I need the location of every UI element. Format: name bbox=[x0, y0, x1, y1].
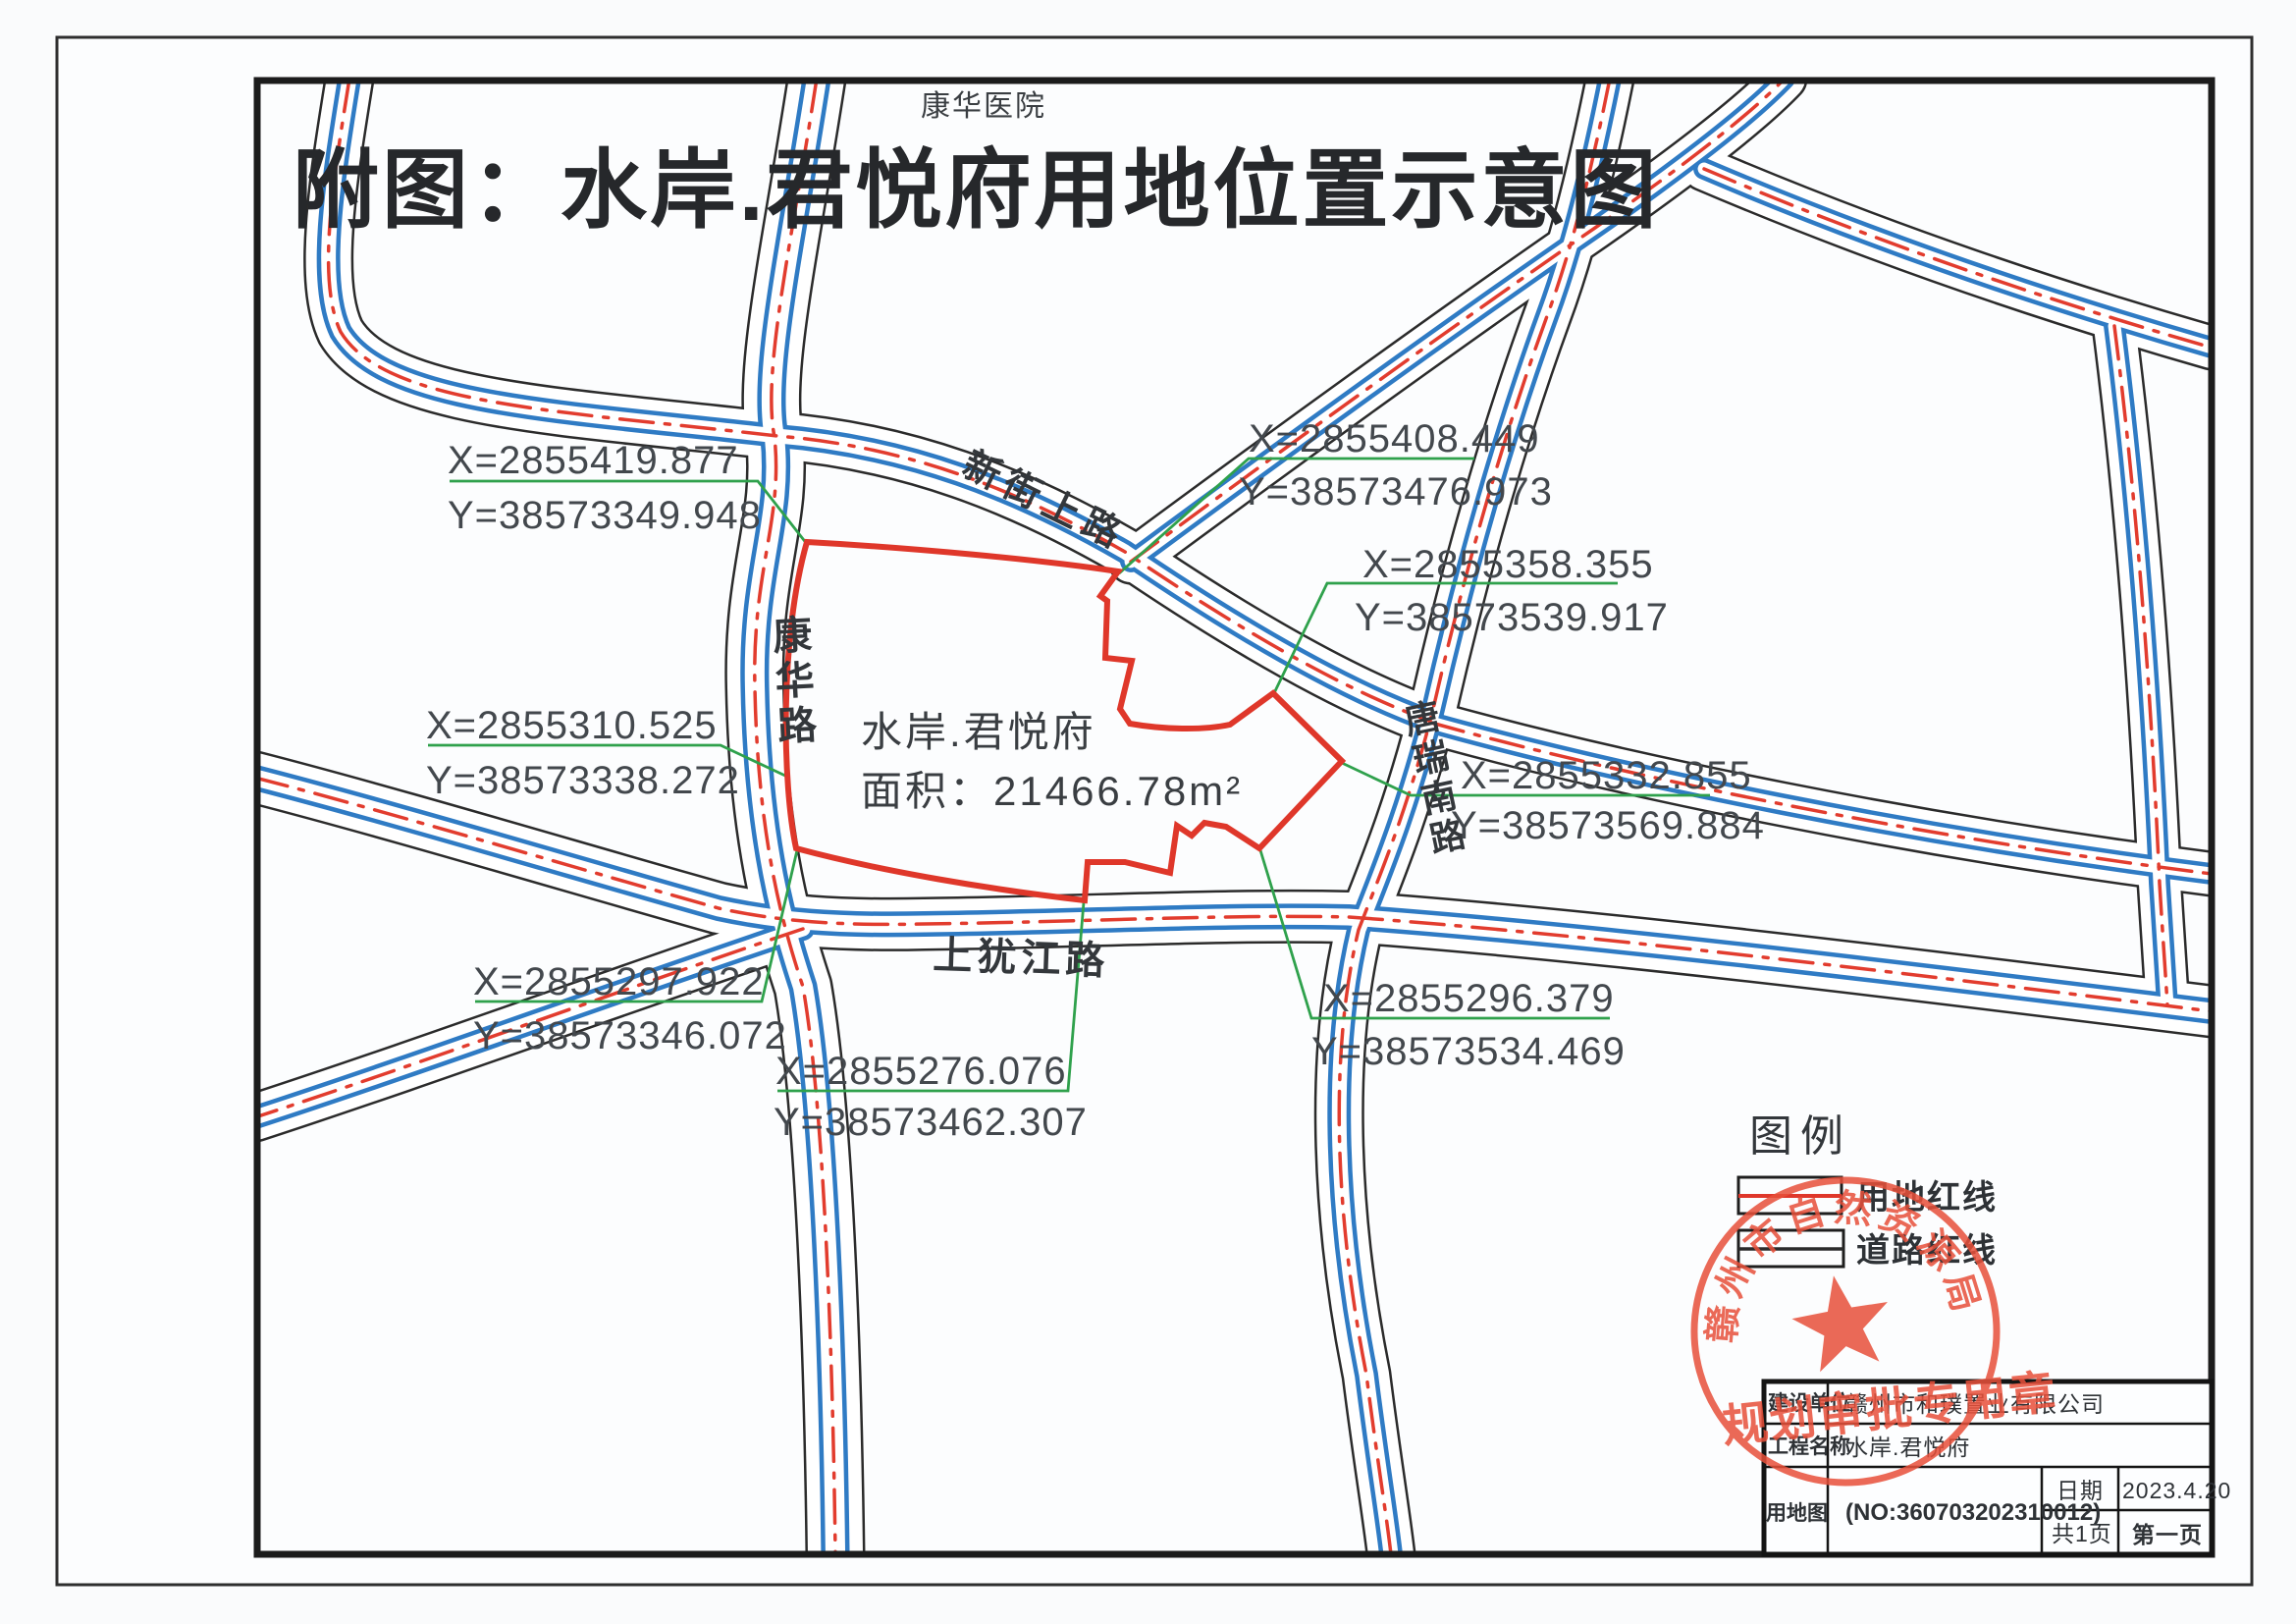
legend-title: 图例 bbox=[1749, 1112, 1851, 1161]
coord-ne-x: X=2855358.355 bbox=[1362, 543, 1654, 586]
map-drawing: 康华医院 附图：水岸.君悦府用地位置示意图 新街上路 上犹江路 康华路 唐瑞南路… bbox=[0, 0, 2296, 1624]
coord-n-y: Y=38573476.973 bbox=[1239, 470, 1553, 514]
drawing-type-label: 用地图 bbox=[1766, 1501, 1828, 1525]
coord-sw-x: X=2855297.922 bbox=[473, 960, 765, 1003]
coord-e-x: X=2855332.855 bbox=[1461, 754, 1752, 797]
total-pages-label: 共1页 bbox=[2052, 1521, 2112, 1546]
scanned-document-page: 康华医院 附图：水岸.君悦府用地位置示意图 新街上路 上犹江路 康华路 唐瑞南路… bbox=[0, 0, 2296, 1624]
page-number-value: 第一页 bbox=[2132, 1522, 2203, 1547]
parcel-name-label: 水岸.君悦府 bbox=[861, 709, 1096, 755]
road-label-shangyoujiang: 上犹江路 bbox=[933, 934, 1110, 983]
coord-sw-y: Y=38573346.072 bbox=[473, 1014, 787, 1057]
coord-se-y: Y=38573534.469 bbox=[1311, 1030, 1626, 1073]
date-value: 2023.4.20 bbox=[2122, 1478, 2231, 1503]
coord-e-y: Y=38573569.884 bbox=[1451, 804, 1765, 847]
coord-s-y: Y=38573462.307 bbox=[774, 1101, 1088, 1144]
road-label-kanghua: 康华路 bbox=[772, 614, 819, 749]
coord-se-x: X=2855296.379 bbox=[1323, 977, 1615, 1020]
date-label: 日期 bbox=[2056, 1478, 2104, 1503]
hospital-label: 康华医院 bbox=[921, 90, 1046, 123]
coord-s-x: X=2855276.076 bbox=[775, 1050, 1067, 1093]
coord-nw-y: Y=38573349.948 bbox=[448, 494, 762, 537]
page-title: 附图：水岸.君悦府用地位置示意图 bbox=[293, 141, 1659, 239]
parcel-area-label: 面积：21466.78m² bbox=[861, 768, 1243, 814]
coord-w-y: Y=38573338.272 bbox=[426, 759, 740, 802]
coord-n-x: X=2855408.449 bbox=[1249, 417, 1540, 460]
coord-nw-x: X=2855419.877 bbox=[448, 439, 739, 482]
coord-w-x: X=2855310.525 bbox=[426, 704, 718, 747]
coord-ne-y: Y=38573539.917 bbox=[1355, 596, 1669, 639]
